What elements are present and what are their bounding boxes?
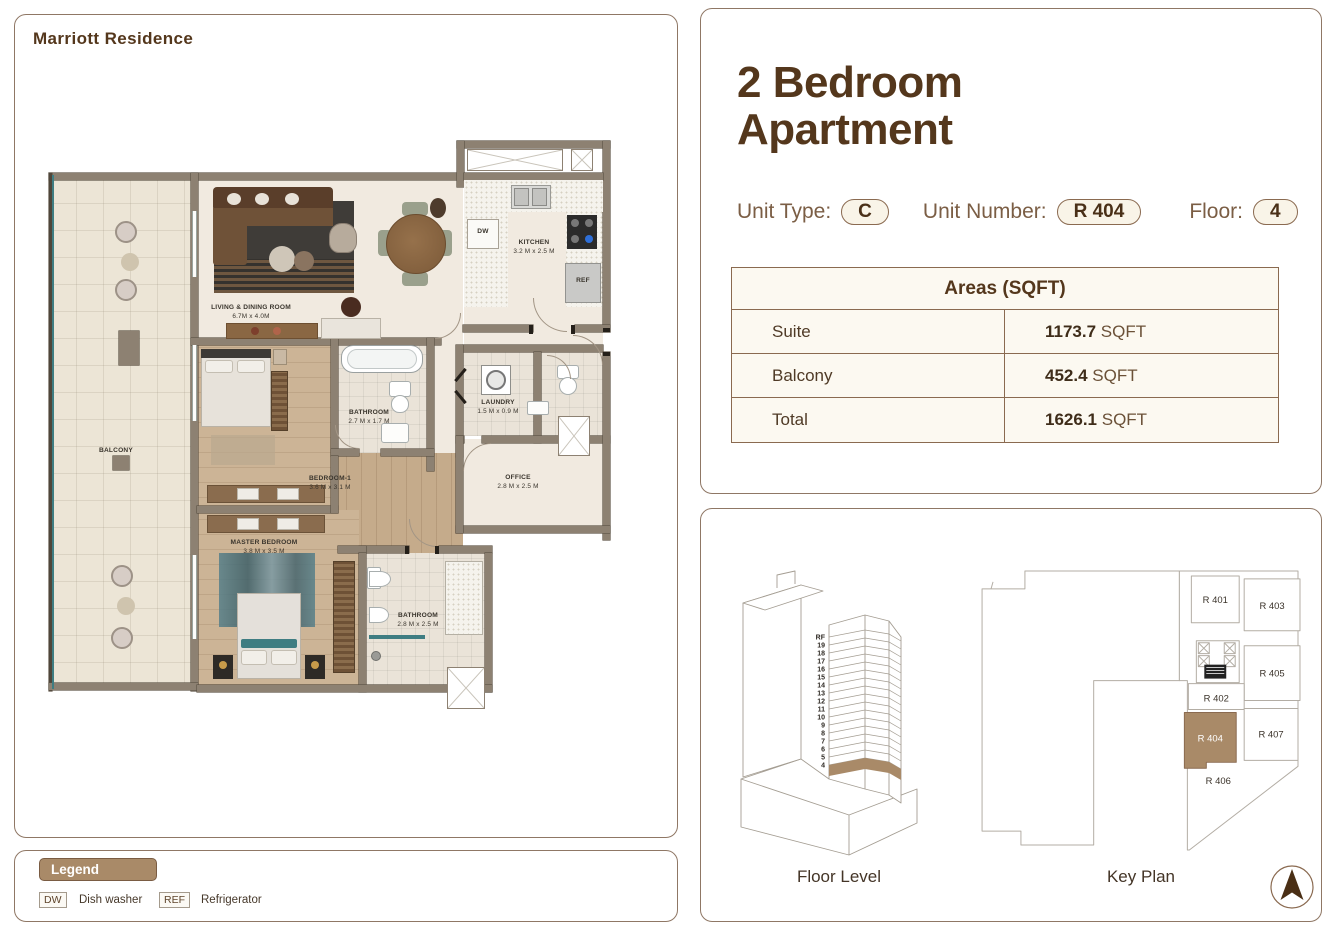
closet-office <box>558 416 590 456</box>
key-plan-unit-label: R 405 <box>1259 669 1284 680</box>
floor-level-label: 12 <box>817 699 825 706</box>
legend-title: Legend <box>39 858 157 881</box>
floor-level-label: 10 <box>817 715 825 722</box>
room-label-kitchen: KITCHEN3.2 M x 2.5 M <box>504 239 564 257</box>
floor-plan-panel: Marriott Residence <box>14 14 678 838</box>
floor-level-label: 19 <box>817 643 825 650</box>
key-plan-unit-label: R 404 <box>1198 733 1223 744</box>
key-plan-unit-label: R 402 <box>1204 694 1229 705</box>
key-plan-unit-label: R 401 <box>1203 595 1228 606</box>
legend-panel: Legend DW Dish washer REF Refrigerator <box>14 850 678 922</box>
floor-level-label: 18 <box>817 651 825 658</box>
unit-number-label: Unit Number: <box>923 200 1047 224</box>
room-label-bathroom1: BATHROOM2.7 M x 1.7 M <box>339 409 399 427</box>
closet-entry <box>467 149 563 171</box>
legend-dw-box: DW <box>39 892 67 908</box>
floor-level-label: 7 <box>821 739 825 746</box>
floor-level-label: 5 <box>821 755 825 762</box>
legend-ref-text: Refrigerator <box>201 894 262 906</box>
floor-level-label: 8 <box>821 731 825 738</box>
dw-label: DW <box>467 228 499 237</box>
unit-meta-row: Unit Type: C Unit Number: R 404 Floor: 4 <box>737 199 1298 225</box>
ref-label: REF <box>565 277 601 286</box>
floor-level-caption: Floor Level <box>759 867 919 887</box>
shaft-bottom <box>447 667 485 709</box>
table-row: Balcony 452.4 SQFT <box>732 354 1278 398</box>
floor-label: Floor: <box>1189 200 1243 224</box>
floor-badge: 4 <box>1253 199 1298 225</box>
key-plan-caption: Key Plan <box>1061 867 1221 887</box>
room-label-living: LIVING & DINING ROOM6.7M x 4.0M <box>211 304 291 322</box>
floor-level-label: 11 <box>818 707 826 714</box>
table-row: Total 1626.1 SQFT <box>732 398 1278 442</box>
brand-title: Marriott Residence <box>33 29 193 49</box>
north-compass-icon <box>1269 864 1315 910</box>
legend-ref-box: REF <box>159 892 190 908</box>
floor-level-label: 15 <box>817 675 825 682</box>
areas-table-header: Areas (SQFT) <box>732 268 1278 310</box>
room-label-bedroom1: BEDROOM-13.6 M x 3.1 M <box>300 475 360 493</box>
room-label-laundry: LAUNDRY1.5 M x 0.9 M <box>468 399 528 417</box>
location-panel: RF19181716151413121110987654 R 4 <box>700 508 1322 922</box>
legend-dw-text: Dish washer <box>79 894 142 906</box>
key-plan-unit-label: R 406 <box>1206 776 1231 787</box>
floor-level-diagram: RF19181716151413121110987654 <box>737 561 949 856</box>
floor-level-label: 6 <box>821 747 825 754</box>
unit-type-badge: C <box>841 199 889 225</box>
floor-level-label: 17 <box>817 659 825 666</box>
page-title: 2 Bedroom Apartment <box>737 59 962 153</box>
floor-level-label: 9 <box>821 723 825 730</box>
room-label-bathroom2: BATHROOM2.8 M x 2.5 M <box>388 612 448 630</box>
room-label-master: MASTER BEDROOM3.8 M x 3.5 M <box>224 539 304 557</box>
unit-number-badge: R 404 <box>1057 199 1142 225</box>
floor-level-label: RF <box>816 635 826 642</box>
areas-table: Areas (SQFT) Suite 1173.7 SQFT Balcony 4… <box>731 267 1279 443</box>
floor-level-label: 14 <box>817 683 825 690</box>
key-plan-unit-label: R 403 <box>1259 601 1284 612</box>
unit-info-panel: 2 Bedroom Apartment Unit Type: C Unit Nu… <box>700 8 1322 494</box>
floor-level-label: 16 <box>817 667 825 674</box>
unit-type-label: Unit Type: <box>737 200 831 224</box>
shaft-top <box>571 149 593 171</box>
room-label-office: OFFICE2.8 M x 2.5 M <box>488 474 548 492</box>
room-label-balcony: BALCONY <box>81 447 151 456</box>
floor-level-label: 4 <box>821 763 825 770</box>
table-row: Suite 1173.7 SQFT <box>732 310 1278 354</box>
floor-level-label: 13 <box>817 691 825 698</box>
key-plan-diagram: R 401R 403R 405R 402R 404R 407R 406 <box>977 559 1321 855</box>
key-plan-unit-label: R 407 <box>1258 729 1283 740</box>
